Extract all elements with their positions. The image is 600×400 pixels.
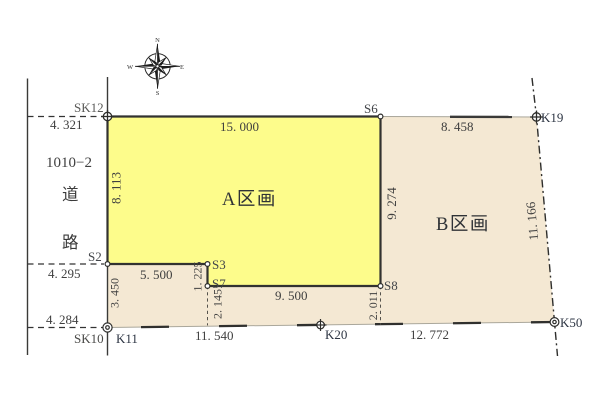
svg-text:3. 450: 3. 450 xyxy=(107,278,121,308)
svg-text:K20: K20 xyxy=(325,327,347,342)
svg-text:4. 321: 4. 321 xyxy=(50,117,83,132)
svg-text:9. 500: 9. 500 xyxy=(275,288,308,303)
svg-text:SK12: SK12 xyxy=(74,100,104,115)
svg-text:S2: S2 xyxy=(88,249,102,264)
svg-text:K50: K50 xyxy=(560,315,582,330)
svg-text:8. 113: 8. 113 xyxy=(108,172,123,204)
svg-text:W: W xyxy=(127,64,134,71)
svg-text:1. 225: 1. 225 xyxy=(190,262,204,292)
svg-text:2. 011: 2. 011 xyxy=(366,291,380,321)
svg-text:S3: S3 xyxy=(212,257,226,272)
svg-text:2. 145: 2. 145 xyxy=(210,289,224,319)
svg-text:S: S xyxy=(156,90,160,97)
svg-text:5. 500: 5. 500 xyxy=(140,267,173,282)
svg-text:8. 458: 8. 458 xyxy=(441,119,474,134)
svg-text:S6: S6 xyxy=(364,101,378,116)
svg-text:K19: K19 xyxy=(541,110,563,125)
svg-text:E: E xyxy=(180,64,184,71)
svg-text:A区画: A区画 xyxy=(222,190,277,210)
svg-text:11. 540: 11. 540 xyxy=(195,328,234,343)
svg-text:B区画: B区画 xyxy=(436,215,490,235)
svg-text:道: 道 xyxy=(62,185,79,204)
svg-text:路: 路 xyxy=(62,233,79,252)
svg-text:N: N xyxy=(155,37,160,44)
svg-text:4. 284: 4. 284 xyxy=(46,312,79,327)
svg-text:S8: S8 xyxy=(384,278,398,293)
svg-text:12. 772: 12. 772 xyxy=(410,327,449,342)
svg-text:4. 295: 4. 295 xyxy=(48,266,81,281)
svg-text:K11: K11 xyxy=(116,331,138,346)
svg-text:15. 000: 15. 000 xyxy=(220,119,259,134)
svg-text:S7: S7 xyxy=(212,276,226,291)
svg-text:9. 274: 9. 274 xyxy=(384,187,399,220)
svg-text:SK10: SK10 xyxy=(74,331,104,346)
svg-text:1010−2: 1010−2 xyxy=(46,155,92,171)
